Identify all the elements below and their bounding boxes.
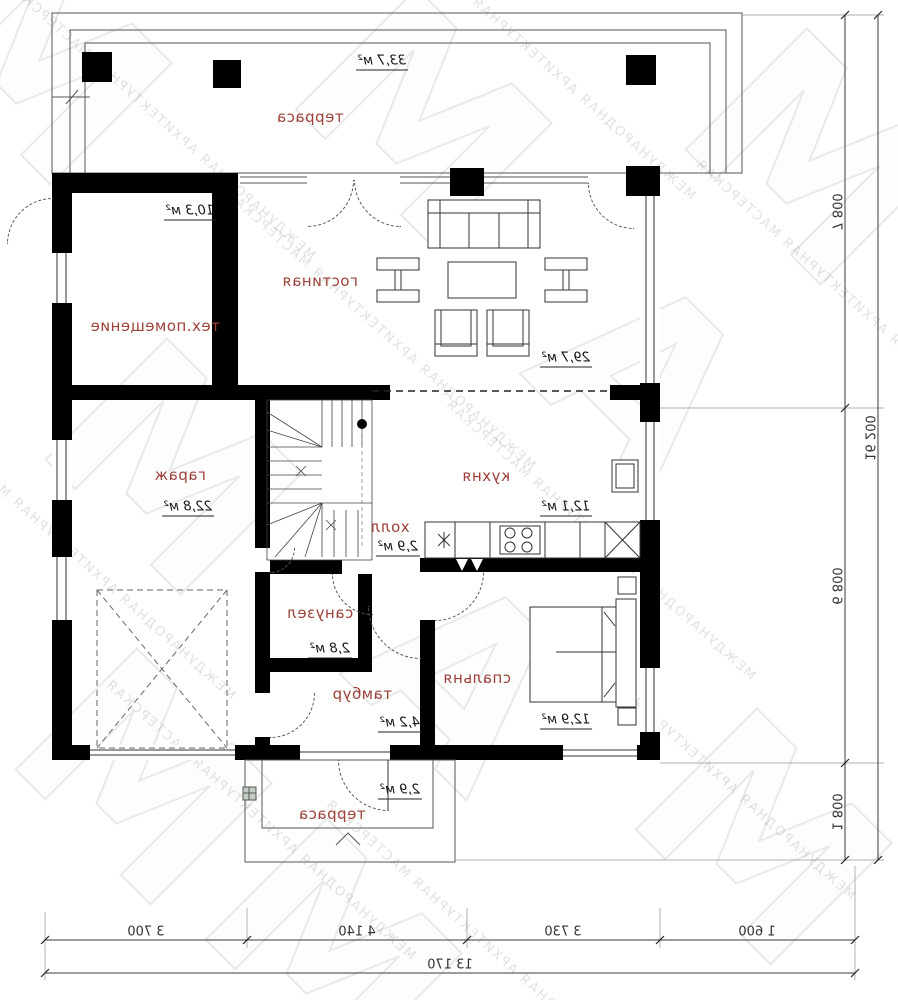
room-label-living: гостиная bbox=[282, 272, 358, 290]
dim-bottom-3730: 3 730 bbox=[544, 925, 581, 940]
room-label-terrace-top: терраса bbox=[276, 108, 343, 126]
room-label-tech: тех.помещение bbox=[90, 317, 220, 335]
floorplan-page: М М М А М М А М М МЕЖДУНАРОДНАЯ АРХИТЕКТ… bbox=[0, 0, 898, 1000]
dim-right-7800: 7 800 bbox=[829, 193, 844, 230]
dim-bottom-13170: 13 170 bbox=[427, 958, 473, 973]
dim-right-6800: 6 800 bbox=[829, 567, 844, 604]
area-label-tech: 10,3 м² bbox=[164, 204, 216, 221]
area-label-hall: 2,9 м² bbox=[376, 540, 420, 557]
staircase bbox=[267, 400, 372, 560]
room-label-terrace-bottom: терраса bbox=[298, 805, 365, 823]
dim-bottom-4140: 4 140 bbox=[338, 925, 375, 940]
area-label-living: 29,7 м² bbox=[540, 351, 592, 368]
room-label-vestibule: тамбур bbox=[332, 685, 392, 703]
dim-right-16200: 16 200 bbox=[862, 415, 877, 461]
dim-bottom-3700: 3 700 bbox=[127, 925, 164, 940]
dimension-ticks bbox=[41, 11, 882, 977]
dim-right-1800: 1 800 bbox=[829, 793, 844, 830]
living-furniture bbox=[377, 200, 587, 356]
terrace-top-outline bbox=[52, 13, 742, 173]
area-label-terrace-bottom: 2,9 м² bbox=[378, 783, 422, 800]
area-label-vestibule: 4,2 м² bbox=[378, 716, 422, 733]
garage-door-marking bbox=[97, 590, 227, 748]
kitchen-counter bbox=[425, 460, 640, 558]
dimension-lines bbox=[41, 11, 884, 980]
room-label-kitchen: кухня bbox=[462, 467, 510, 485]
dim-bottom-1600: 1 600 bbox=[738, 925, 775, 940]
glazing bbox=[240, 177, 588, 183]
bedroom-furniture bbox=[530, 577, 636, 725]
area-label-bathroom: 2,8 м² bbox=[308, 642, 352, 659]
room-label-garage: гараж bbox=[154, 466, 206, 484]
room-label-bathroom: санузел bbox=[287, 604, 353, 622]
room-label-hall: холл bbox=[370, 518, 409, 536]
area-label-kitchen: 12,1 м² bbox=[540, 500, 592, 517]
room-label-bedroom: спальня bbox=[443, 669, 511, 687]
area-label-bedroom: 12,9 м² bbox=[540, 713, 592, 730]
floorplan-drawing bbox=[0, 0, 898, 1000]
area-label-terrace-top: 33,7 м² bbox=[356, 54, 408, 71]
area-label-garage: 22,8 м² bbox=[162, 500, 214, 517]
